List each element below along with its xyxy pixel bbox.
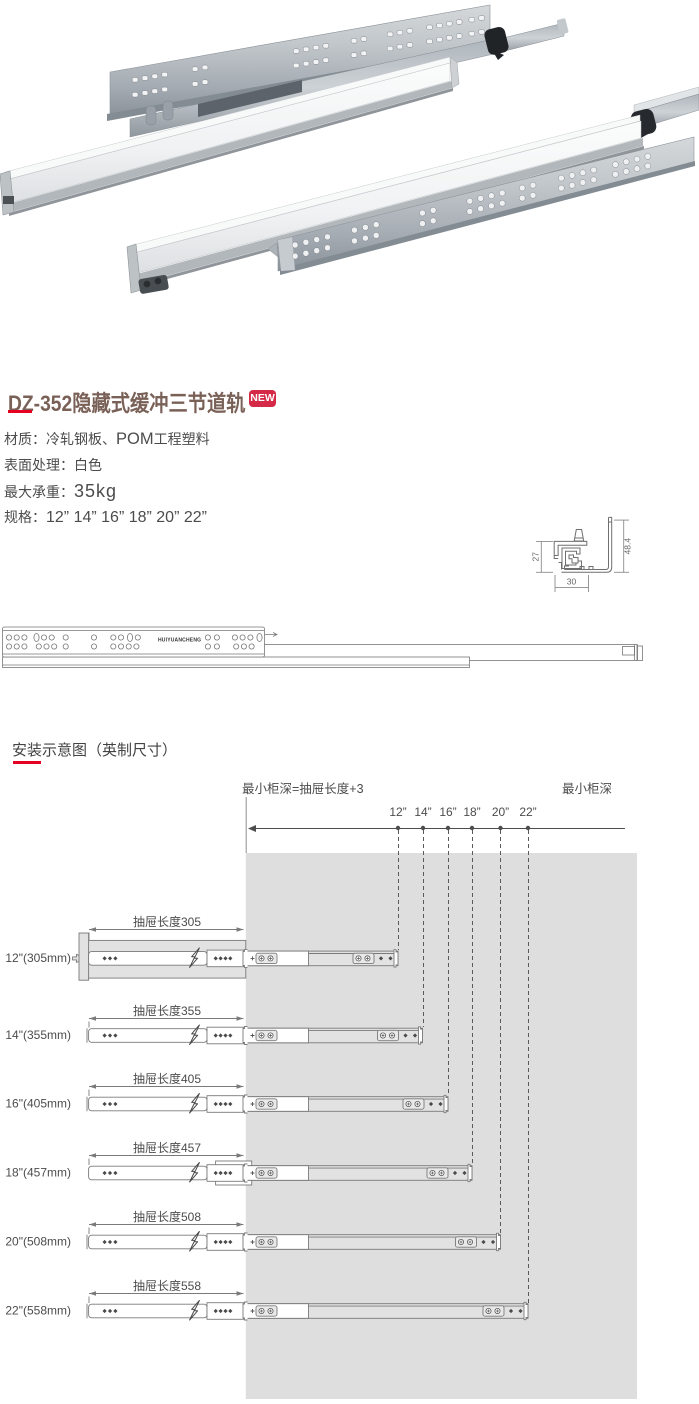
svg-text:16”: 16”	[439, 805, 456, 819]
svg-text:18"(457mm): 18"(457mm)	[5, 1166, 71, 1180]
svg-text:30: 30	[567, 577, 577, 587]
svg-text:最小柜深: 最小柜深	[562, 782, 612, 796]
svg-text:14"(355mm): 14"(355mm)	[5, 1028, 71, 1042]
svg-text:18”: 18”	[463, 805, 480, 819]
svg-text:20"(508mm): 20"(508mm)	[5, 1235, 71, 1249]
svg-text:22"(558mm): 22"(558mm)	[5, 1304, 71, 1318]
svg-text:最小柜深=抽屉长度+3: 最小柜深=抽屉长度+3	[242, 781, 364, 796]
svg-text:22”: 22”	[519, 805, 536, 819]
svg-text:16"(405mm): 16"(405mm)	[5, 1097, 71, 1111]
svg-text:抽屉长度355: 抽屉长度355	[133, 1003, 201, 1018]
svg-text:抽屉长度508: 抽屉长度508	[133, 1209, 201, 1224]
svg-text:12"(305mm): 12"(305mm)	[5, 951, 71, 965]
svg-text:抽屉长度457: 抽屉长度457	[133, 1140, 201, 1155]
svg-text:抽屉长度305: 抽屉长度305	[133, 914, 201, 929]
svg-text:20”: 20”	[492, 805, 509, 819]
svg-text:12”: 12”	[389, 805, 406, 819]
svg-text:48.4: 48.4	[623, 538, 633, 555]
svg-text:抽屉长度558: 抽屉长度558	[133, 1278, 201, 1293]
svg-text:14”: 14”	[414, 805, 431, 819]
svg-text:HUIYUANCHENG: HUIYUANCHENG	[158, 638, 201, 644]
svg-text:抽屉长度405: 抽屉长度405	[133, 1071, 201, 1086]
svg-text:27: 27	[531, 552, 541, 562]
